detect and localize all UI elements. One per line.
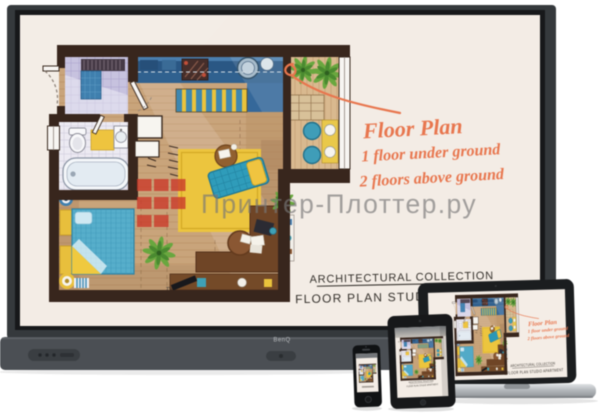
svg-text:Принтер-Плоттер.ру: Принтер-Плоттер.ру: [201, 189, 477, 219]
svg-text:BenQ: BenQ: [273, 338, 290, 344]
